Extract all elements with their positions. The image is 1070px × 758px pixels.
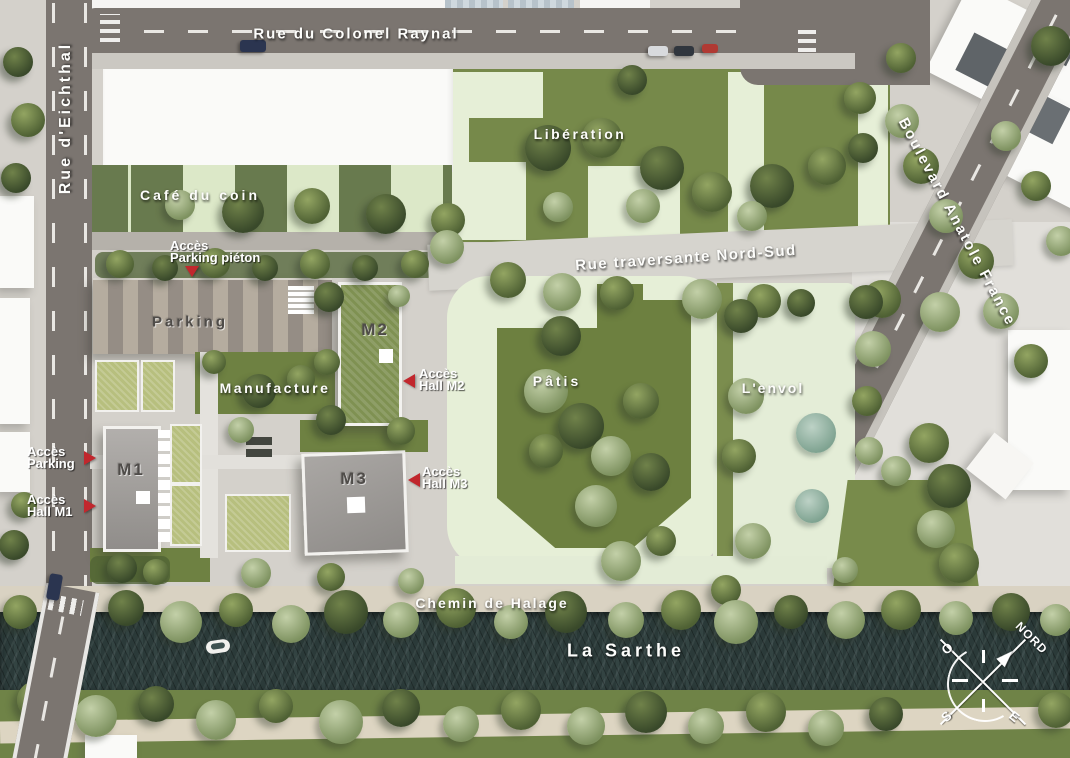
roof-garden (141, 360, 175, 412)
sidewalk (85, 53, 855, 69)
access-label-hall-m2: Accès Hall M2 (419, 368, 465, 392)
crosswalk (798, 26, 816, 52)
street-label-eichthal: Rue d'Eichthal (57, 42, 75, 194)
compass-tick (1002, 679, 1018, 682)
plaza-lawn (833, 480, 979, 588)
roof-garden (225, 494, 291, 552)
area-label-cafe: Café du coin (140, 187, 260, 203)
tree (241, 558, 271, 588)
access-marker-down-icon (185, 266, 199, 277)
building-m2 (338, 282, 402, 426)
access-line: Hall M1 (27, 506, 73, 518)
path-label-halage: Chemin de Halage (415, 595, 568, 611)
access-label-parking: Accès Parking (27, 446, 75, 470)
building-label-m1: M1 (117, 460, 145, 480)
building-label-m3: M3 (340, 469, 368, 489)
compass-tick (982, 650, 985, 663)
area-label-patis: Pâtis (533, 373, 581, 389)
patis-courtyard (643, 300, 691, 330)
patis-courtyard (497, 328, 691, 498)
access-line: Parking (27, 458, 75, 470)
tree (3, 47, 33, 77)
roof-garden (95, 360, 139, 412)
patis-courtyard (597, 284, 643, 330)
building-footprint (858, 72, 888, 240)
building-block (0, 298, 30, 424)
roof-structure (347, 497, 366, 514)
building-footprint (728, 72, 764, 240)
compass-label-west: O (938, 640, 955, 658)
roof-garden (170, 484, 202, 546)
envol-green-strip (717, 283, 733, 568)
car (702, 44, 718, 53)
stairs (288, 286, 314, 314)
solar-panels (246, 449, 272, 457)
compass-rose: NORD O S E (918, 617, 1048, 747)
building-block (0, 196, 34, 288)
compass-label-north: NORD (1013, 619, 1051, 657)
car (674, 46, 694, 56)
compass-tick (982, 699, 985, 712)
crosswalk (100, 14, 120, 42)
street-label-colonel-raynal: Rue du Colonel Raynal (253, 26, 458, 43)
access-marker-left-icon (408, 473, 420, 487)
roof-structure (379, 349, 393, 363)
roof-structure (136, 491, 150, 504)
access-marker-left-icon (403, 374, 415, 388)
building-footprint (455, 556, 827, 584)
building-label-m2: M2 (361, 320, 389, 340)
access-marker-right-icon (84, 499, 96, 513)
access-marker-right-icon (84, 451, 96, 465)
access-line: Hall M2 (419, 380, 465, 392)
building-m3 (301, 450, 408, 556)
road-dashes (33, 616, 65, 758)
area-label-manufacture: Manufacture (220, 380, 331, 396)
area-label-envol: L'envol (742, 380, 804, 396)
site-plan-map: Rue du Colonel Raynal Rue d'Eichthal Bou… (0, 0, 1070, 758)
building-block (85, 735, 137, 758)
area-envol (713, 283, 855, 568)
building-footprint (588, 166, 680, 240)
area-label-parking: Parking (152, 314, 228, 331)
solar-panels (246, 437, 272, 445)
compass-tick (952, 679, 968, 682)
hedge-row (90, 556, 170, 584)
tree (0, 530, 29, 560)
hedge-row (95, 252, 435, 278)
access-label-hall-m3: Accès Hall M3 (422, 466, 468, 490)
building-block (0, 432, 30, 492)
building-footprint (440, 162, 526, 240)
tree (1, 163, 31, 193)
building-block (103, 60, 453, 172)
river-label: La Sarthe (567, 641, 685, 662)
access-line: Hall M3 (422, 478, 468, 490)
car (648, 46, 668, 56)
boat-deck (211, 642, 226, 650)
building-m1 (103, 426, 161, 552)
road-intersection (740, 0, 930, 85)
balconies (158, 430, 170, 542)
area-label-liberation: Libération (534, 126, 627, 142)
access-label-hall-m1: Accès Hall M1 (27, 494, 73, 518)
roof-garden (170, 424, 202, 484)
tree (11, 103, 45, 137)
garden-wall (85, 232, 452, 250)
access-line: Parking piéton (170, 252, 260, 264)
river-la-sarthe (0, 612, 1070, 696)
access-label-parking-pieton: Accès Parking piéton (170, 240, 260, 264)
